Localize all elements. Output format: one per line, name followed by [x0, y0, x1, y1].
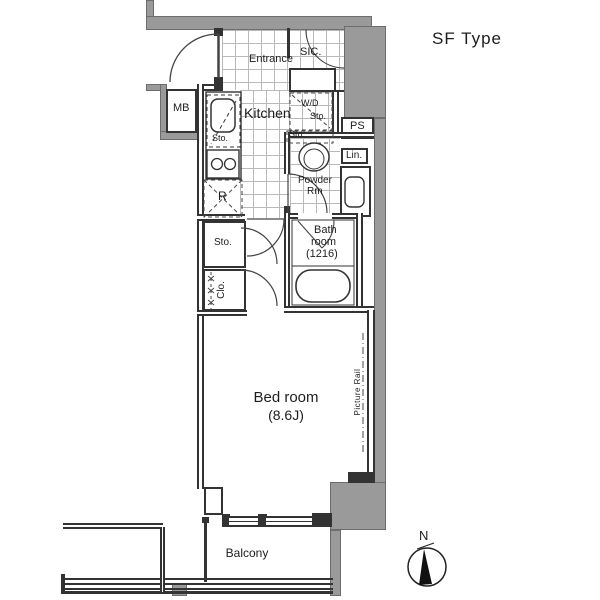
wall-bedroom-right [367, 310, 375, 478]
meter-box-label: MB [173, 103, 190, 114]
compass-icon [408, 543, 446, 586]
bedroom-window-2 [266, 516, 312, 527]
entrance-door-post-top [214, 28, 223, 36]
linen-label: Lin. [346, 151, 362, 161]
plan-type-title: SF Type [432, 30, 502, 47]
bathroom-label-2: room [311, 237, 336, 248]
bedroom-label-1: Bed room [205, 390, 367, 405]
bedroom-window-1 [229, 516, 259, 527]
wall-washer-right [332, 92, 339, 133]
washer-dryer-label-2: Sto. [310, 112, 326, 121]
wall-top [146, 16, 372, 30]
hall-door-swing-icon [247, 219, 284, 256]
wall-hall-top [197, 214, 245, 221]
balcony-partition-head [202, 517, 209, 523]
balcony-rail-end-cap [61, 574, 65, 594]
wall-bath-left [284, 213, 290, 313]
kitchen-storage-label: Sto. [212, 134, 228, 143]
compass-north-label: N [419, 529, 428, 542]
wall-bedroom-right-step [348, 472, 375, 483]
stove-icon [207, 150, 239, 178]
balcony-rail-line-4 [63, 591, 333, 594]
wall-neighbor-balcony [63, 523, 163, 529]
pipe-space-label: PS [350, 121, 365, 132]
refrigerator-label: R [218, 190, 227, 202]
wall-bedroom-top-left [197, 310, 247, 316]
shoe-cabinet [289, 68, 336, 92]
entrance-door-swing-icon [170, 34, 219, 82]
bathroom-label-3: (1216) [306, 249, 338, 260]
powder-room-label-2: Rm [307, 187, 323, 197]
balcony-label: Balcony [162, 547, 332, 559]
balcony-rail-line-2 [63, 583, 333, 585]
picture-rail-label: Picture Rail [354, 369, 362, 416]
sink-icon [211, 99, 235, 132]
hall-storage-door-swing-icon [241, 228, 277, 264]
floor-plan: SF Type Entrance SIC. MB Kitchen Sto. W/… [0, 0, 600, 600]
balcony-rail-line-3 [63, 588, 333, 590]
balcony-rail-line-1 [63, 578, 333, 580]
kitchen-label: Kitchen [244, 106, 291, 120]
bathroom-label-1: Bath [314, 225, 337, 236]
wall-balcony-right [330, 530, 341, 596]
sic-label: SIC. [300, 47, 321, 58]
bedroom-label-2: (8.6J) [205, 408, 367, 422]
wall-bath-bottom [284, 306, 374, 313]
toilet-storage-label: Sto. [289, 130, 305, 139]
north-arrow-icon [419, 549, 432, 585]
wall-balcony-left [160, 527, 165, 592]
bathtub-icon [296, 270, 350, 302]
washer-dryer-label-1: W/D [301, 99, 319, 108]
wall-right [374, 118, 386, 484]
powder-room-label-1: Powder [298, 176, 332, 186]
entrance-label: Entrance [249, 54, 293, 65]
wall-bottom-right-block [330, 482, 386, 530]
wall-top-right-block [344, 26, 386, 118]
bedroom-corner-column [204, 487, 223, 515]
window-post-c [312, 513, 332, 527]
closet-label: Clo. [217, 281, 227, 299]
closet-door-swing-icon [241, 270, 277, 306]
wall-bath-right [356, 213, 363, 313]
entrance-door-post-bottom [214, 77, 223, 90]
hall-storage-label: Sto. [214, 238, 232, 248]
washbasin-counter [340, 166, 371, 217]
